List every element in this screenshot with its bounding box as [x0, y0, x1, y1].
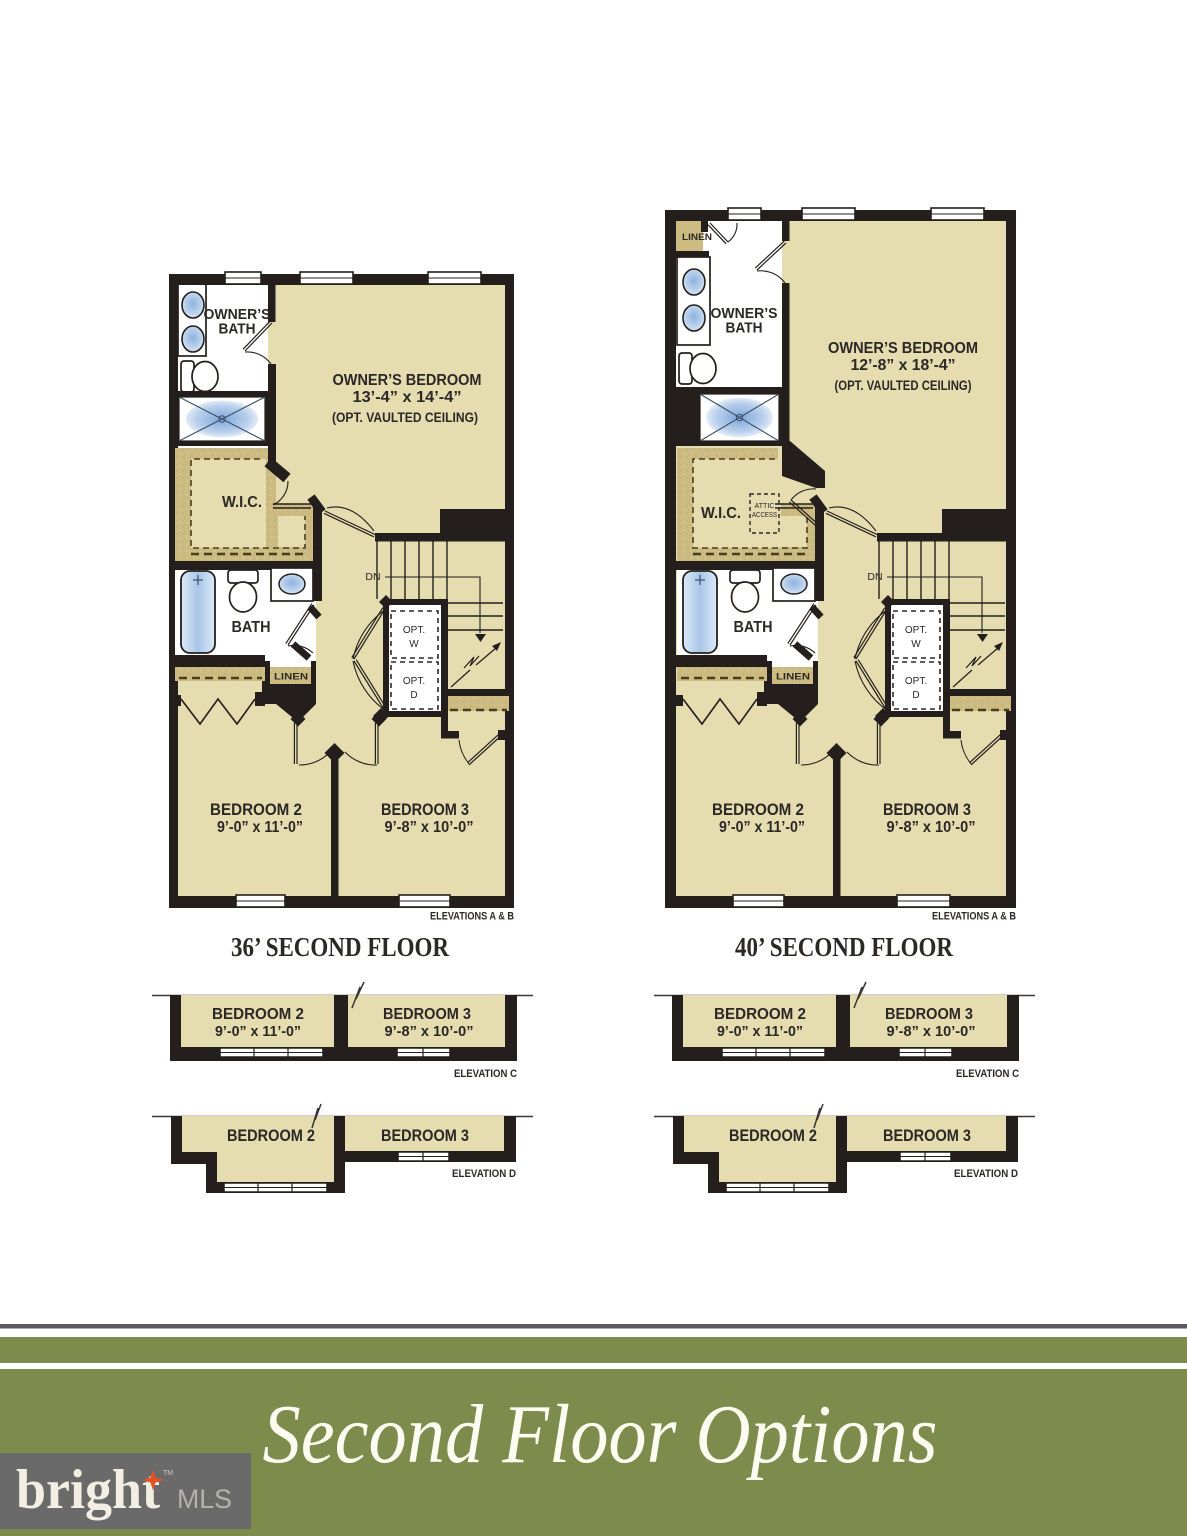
svg-text:W: W: [911, 639, 921, 650]
svg-text:bright: bright: [16, 1459, 160, 1521]
svg-text:BEDROOM 3: BEDROOM 3: [381, 801, 469, 819]
svg-text:BEDROOM 2: BEDROOM 2: [227, 1127, 315, 1145]
svg-text:9’-0” x 11’-0”: 9’-0” x 11’-0”: [215, 1023, 301, 1040]
svg-text:ELEVATIONS A & B: ELEVATIONS A & B: [430, 911, 514, 923]
svg-text:BEDROOM 2: BEDROOM 2: [729, 1127, 817, 1145]
svg-text:OPT.: OPT.: [905, 625, 927, 636]
svg-text:12’-8” x 18’-4”: 12’-8” x 18’-4”: [851, 357, 956, 374]
svg-text:9’-8” x 10’-0”: 9’-8” x 10’-0”: [887, 819, 976, 836]
svg-text:BEDROOM 2: BEDROOM 2: [210, 801, 302, 819]
svg-text:DN: DN: [867, 571, 882, 583]
svg-text:OPT.: OPT.: [403, 676, 425, 687]
svg-text:BEDROOM 3: BEDROOM 3: [883, 1127, 971, 1145]
svg-text:LINEN: LINEN: [776, 672, 810, 683]
svg-text:W: W: [409, 639, 419, 650]
svg-text:9’-8” x 10’-0”: 9’-8” x 10’-0”: [385, 819, 474, 836]
svg-text:OPT.: OPT.: [905, 676, 927, 687]
svg-text:ACCESS: ACCESS: [752, 510, 777, 519]
svg-text:W.I.C.: W.I.C.: [222, 494, 262, 511]
svg-text:9’-8” x 10’-0”: 9’-8” x 10’-0”: [385, 1023, 474, 1040]
svg-text:DN: DN: [365, 571, 380, 583]
svg-text:9’-8” x 10’-0”: 9’-8” x 10’-0”: [887, 1023, 976, 1040]
svg-text:40’ SECOND FLOOR: 40’ SECOND FLOOR: [735, 932, 953, 962]
svg-text:OWNER’S BEDROOM: OWNER’S BEDROOM: [828, 340, 978, 357]
svg-text:BEDROOM 2: BEDROOM 2: [714, 1006, 806, 1023]
svg-text:BATH: BATH: [219, 322, 256, 338]
svg-text:9’-0” x 11’-0”: 9’-0” x 11’-0”: [217, 819, 303, 836]
svg-text:D: D: [912, 690, 919, 701]
svg-text:BEDROOM 3: BEDROOM 3: [883, 801, 971, 819]
svg-text:BATH: BATH: [734, 619, 773, 636]
svg-text:ELEVATION D: ELEVATION D: [452, 1168, 516, 1180]
svg-text:OPT.: OPT.: [403, 625, 425, 636]
svg-text:D: D: [410, 690, 417, 701]
svg-text:ELEVATION C: ELEVATION C: [454, 1068, 517, 1080]
svg-text:(OPT. VAULTED CEILING): (OPT. VAULTED CEILING): [332, 410, 478, 425]
svg-text:BEDROOM 3: BEDROOM 3: [383, 1006, 471, 1023]
svg-text:ELEVATION C: ELEVATION C: [956, 1068, 1019, 1080]
svg-text:LINEN: LINEN: [682, 232, 712, 242]
svg-text:36’ SECOND FLOOR: 36’ SECOND FLOOR: [231, 932, 449, 962]
svg-text:ATTIC: ATTIC: [755, 501, 776, 510]
svg-text:BEDROOM 3: BEDROOM 3: [381, 1127, 469, 1145]
svg-text:BEDROOM 2: BEDROOM 2: [712, 801, 804, 819]
svg-text:ELEVATIONS A & B: ELEVATIONS A & B: [932, 911, 1016, 923]
svg-text:BATH: BATH: [726, 321, 763, 337]
svg-text:(OPT. VAULTED CEILING): (OPT. VAULTED CEILING): [835, 378, 972, 393]
svg-text:ELEVATION D: ELEVATION D: [954, 1168, 1018, 1180]
svg-text:TM: TM: [163, 1470, 173, 1477]
svg-text:9’-0” x 11’-0”: 9’-0” x 11’-0”: [717, 1023, 803, 1040]
svg-text:BEDROOM 3: BEDROOM 3: [885, 1006, 973, 1023]
svg-text:Second Floor Options: Second Floor Options: [263, 1388, 938, 1481]
svg-text:9’-0” x 11’-0”: 9’-0” x 11’-0”: [719, 819, 805, 836]
svg-text:MLS: MLS: [177, 1484, 232, 1514]
svg-text:LINEN: LINEN: [274, 672, 308, 683]
svg-text:13’-4” x 14’-4”: 13’-4” x 14’-4”: [353, 389, 462, 406]
svg-text:W.I.C.: W.I.C.: [701, 505, 741, 522]
svg-text:OWNER’S BEDROOM: OWNER’S BEDROOM: [333, 372, 482, 389]
svg-text:BATH: BATH: [232, 619, 271, 636]
svg-text:BEDROOM 2: BEDROOM 2: [212, 1006, 304, 1023]
